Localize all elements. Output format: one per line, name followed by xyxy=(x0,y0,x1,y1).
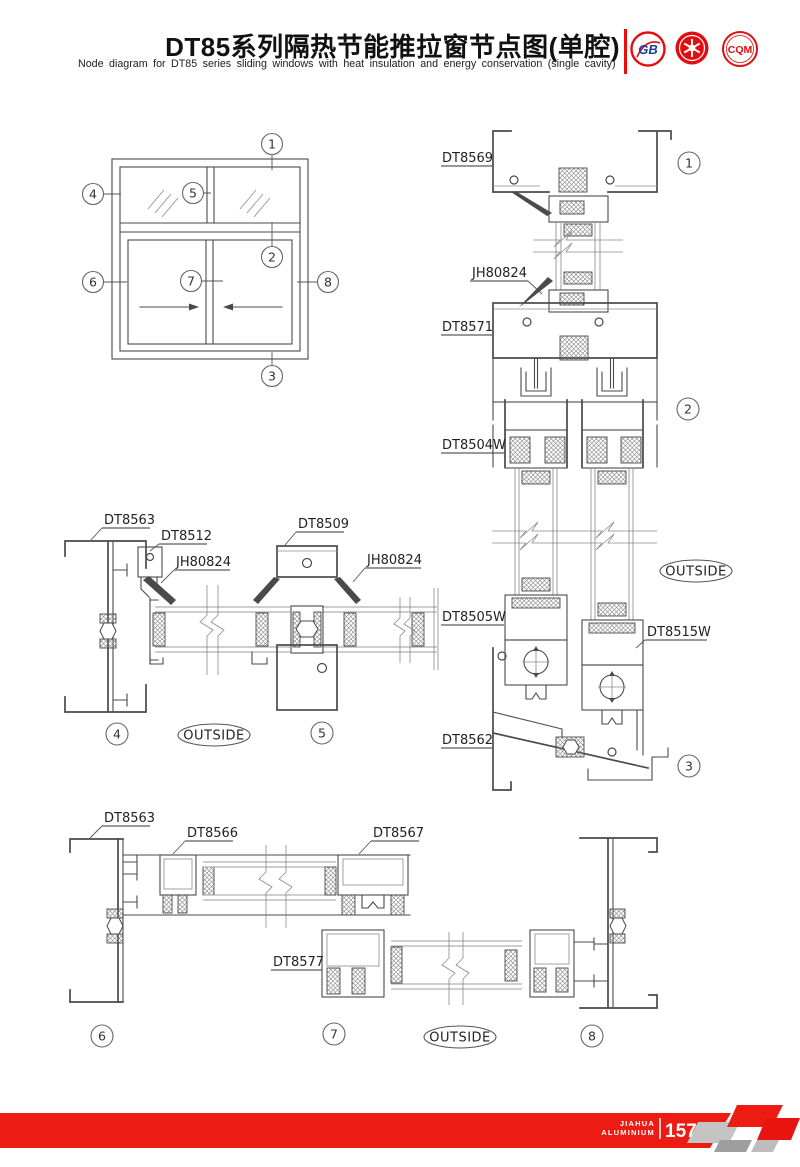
svg-text:OUTSIDE: OUTSIDE xyxy=(429,1031,491,1046)
svg-text:3: 3 xyxy=(268,369,276,384)
callout-7: 7 xyxy=(323,1023,345,1045)
header-logos: GB CQM xyxy=(0,0,800,95)
outside-label: OUTSIDE xyxy=(178,724,250,746)
svg-text:8: 8 xyxy=(588,1029,596,1044)
callout-8: 8 xyxy=(581,1025,603,1047)
glass-hatch-right xyxy=(240,190,270,217)
svg-text:DT8505W: DT8505W xyxy=(442,610,506,625)
svg-text:DT8577: DT8577 xyxy=(273,955,324,970)
svg-text:2: 2 xyxy=(684,402,692,417)
callout-2: 2 xyxy=(677,398,699,420)
outside-label: OUTSIDE xyxy=(660,560,732,582)
callout-3: 3 xyxy=(262,366,283,387)
callout-7: 7 xyxy=(181,271,202,292)
callout-6: 6 xyxy=(83,272,104,293)
svg-text:DT8512: DT8512 xyxy=(161,529,212,544)
gb-certification-logo: GB xyxy=(632,33,665,66)
svg-text:1: 1 xyxy=(685,156,693,171)
label-jh80824: JH80824 xyxy=(470,266,542,294)
label-jh80824: JH80824 xyxy=(353,553,422,582)
label-jh80824: JH80824 xyxy=(161,555,231,583)
svg-text:3: 3 xyxy=(685,759,693,774)
node-diagrams: 1 4 5 2 6 7 8 3 xyxy=(0,95,800,1085)
svg-text:1: 1 xyxy=(268,137,276,152)
cqm-certification-logo: CQM xyxy=(723,32,757,66)
callout-1: 1 xyxy=(262,134,283,155)
callout-6: 6 xyxy=(91,1025,113,1047)
footer-deco-gray-faint xyxy=(751,1140,779,1152)
callout-5: 5 xyxy=(311,722,333,744)
vertical-section-diagram: DT8569 JH80824 DT8571 DT8504W DT8505W DT… xyxy=(441,131,732,790)
footer-band: JIAHUA ALUMINIUM 157 xyxy=(0,1085,800,1167)
label-dt8505w: DT8505W xyxy=(441,610,506,625)
svg-text:OUTSIDE: OUTSIDE xyxy=(665,565,727,580)
svg-text:DT8566: DT8566 xyxy=(187,826,238,841)
svg-text:7: 7 xyxy=(187,274,195,289)
label-dt8567: DT8567 xyxy=(359,826,424,854)
label-dt8563: DT8563 xyxy=(90,513,155,541)
footer-brand-line1: JIAHUA xyxy=(620,1119,655,1128)
label-dt8563: DT8563 xyxy=(90,811,155,838)
svg-text:DT8563: DT8563 xyxy=(104,811,155,826)
footer-brand-line2: ALUMINIUM xyxy=(601,1128,655,1137)
svg-text:DT8562: DT8562 xyxy=(442,733,493,748)
roller-wheel-icon xyxy=(522,646,550,678)
label-dt8504w: DT8504W xyxy=(441,438,506,453)
star-seal-logo xyxy=(676,32,709,65)
callout-4: 4 xyxy=(106,723,128,745)
slide-direction-arrows xyxy=(140,304,282,311)
label-dt8569: DT8569 xyxy=(441,151,493,166)
horizontal-section-mid-diagram: DT8563 DT8512 JH80824 DT8509 JH80824 xyxy=(65,513,438,746)
callout-8: 8 xyxy=(318,272,339,293)
svg-text:JH80824: JH80824 xyxy=(175,555,231,570)
callout-1: 1 xyxy=(678,152,700,174)
svg-text:5: 5 xyxy=(318,726,326,741)
svg-text:2: 2 xyxy=(268,250,276,265)
svg-text:6: 6 xyxy=(98,1029,106,1044)
svg-text:4: 4 xyxy=(113,727,121,742)
svg-text:OUTSIDE: OUTSIDE xyxy=(183,729,245,744)
svg-text:DT8571: DT8571 xyxy=(442,320,493,335)
gb-logo-text: GB xyxy=(638,42,658,57)
svg-text:5: 5 xyxy=(189,186,197,201)
label-dt8512: DT8512 xyxy=(150,529,212,551)
roller-wheel-icon xyxy=(598,671,626,703)
catalog-page: DT85系列隔热节能推拉窗节点图(单腔) Node diagram for DT… xyxy=(0,0,800,1167)
horizontal-section-bottom-diagram: DT8563 DT8566 DT8567 DT8577 OUTSIDE 6 7 … xyxy=(70,811,657,1048)
label-dt8515w: DT8515W xyxy=(636,625,711,648)
cqm-logo-text: CQM xyxy=(728,44,753,56)
label-dt8562: DT8562 xyxy=(441,733,493,748)
window-elevation-diagram: 1 4 5 2 6 7 8 3 xyxy=(83,134,339,387)
label-dt8577: DT8577 xyxy=(271,955,324,970)
svg-text:JH80824: JH80824 xyxy=(366,553,422,568)
svg-text:4: 4 xyxy=(89,187,97,202)
callout-2: 2 xyxy=(262,247,283,268)
label-dt8566: DT8566 xyxy=(173,826,238,854)
svg-text:DT8504W: DT8504W xyxy=(442,438,506,453)
svg-text:6: 6 xyxy=(89,275,97,290)
label-dt8509: DT8509 xyxy=(285,517,349,545)
svg-text:DT8515W: DT8515W xyxy=(647,625,711,640)
glass-hatch-left xyxy=(148,190,178,217)
svg-text:DT8567: DT8567 xyxy=(373,826,424,841)
svg-text:7: 7 xyxy=(330,1027,338,1042)
callout-3: 3 xyxy=(678,755,700,777)
svg-text:DT8509: DT8509 xyxy=(298,517,349,532)
outside-label: OUTSIDE xyxy=(424,1026,496,1048)
svg-text:JH80824: JH80824 xyxy=(471,266,527,281)
svg-text:DT8569: DT8569 xyxy=(442,151,493,166)
footer-page-number: 157 xyxy=(665,1121,697,1142)
label-dt8571: DT8571 xyxy=(441,320,493,335)
callout-4: 4 xyxy=(83,184,104,205)
svg-text:DT8563: DT8563 xyxy=(104,513,155,528)
footer-deco-gray-dark xyxy=(714,1140,752,1152)
callout-5: 5 xyxy=(183,183,204,204)
svg-text:8: 8 xyxy=(324,275,332,290)
